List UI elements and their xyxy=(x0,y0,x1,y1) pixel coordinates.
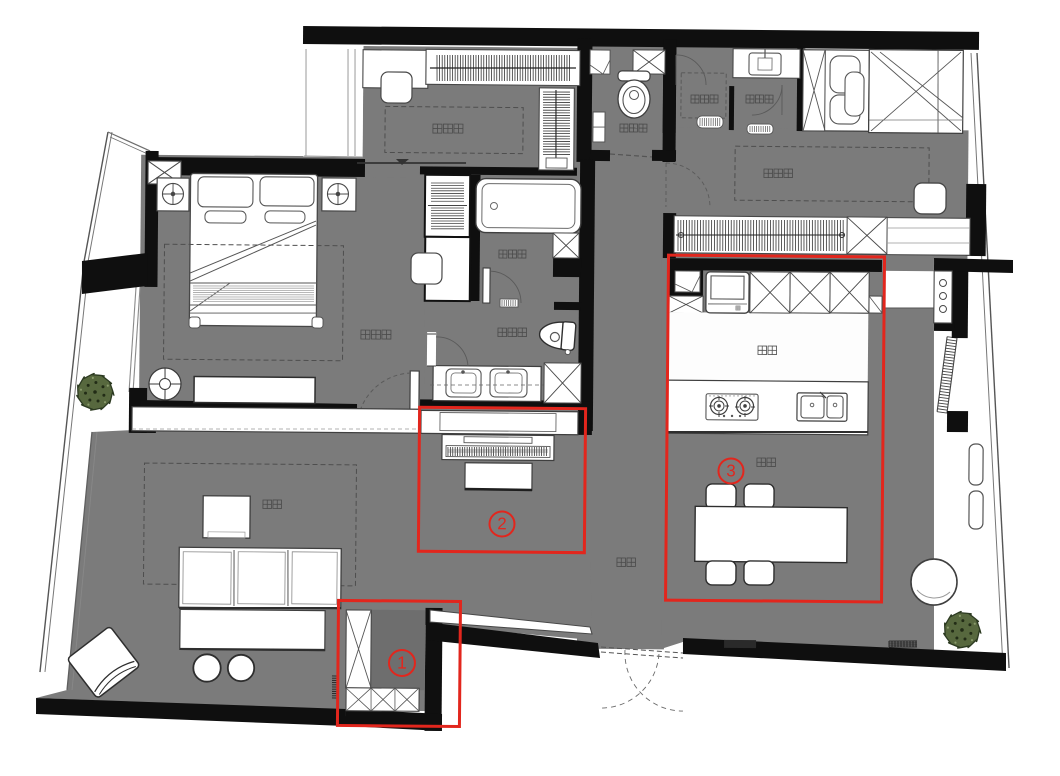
svg-text:1: 1 xyxy=(397,652,407,672)
svg-text:2: 2 xyxy=(497,514,507,533)
svg-text:3: 3 xyxy=(726,461,736,480)
